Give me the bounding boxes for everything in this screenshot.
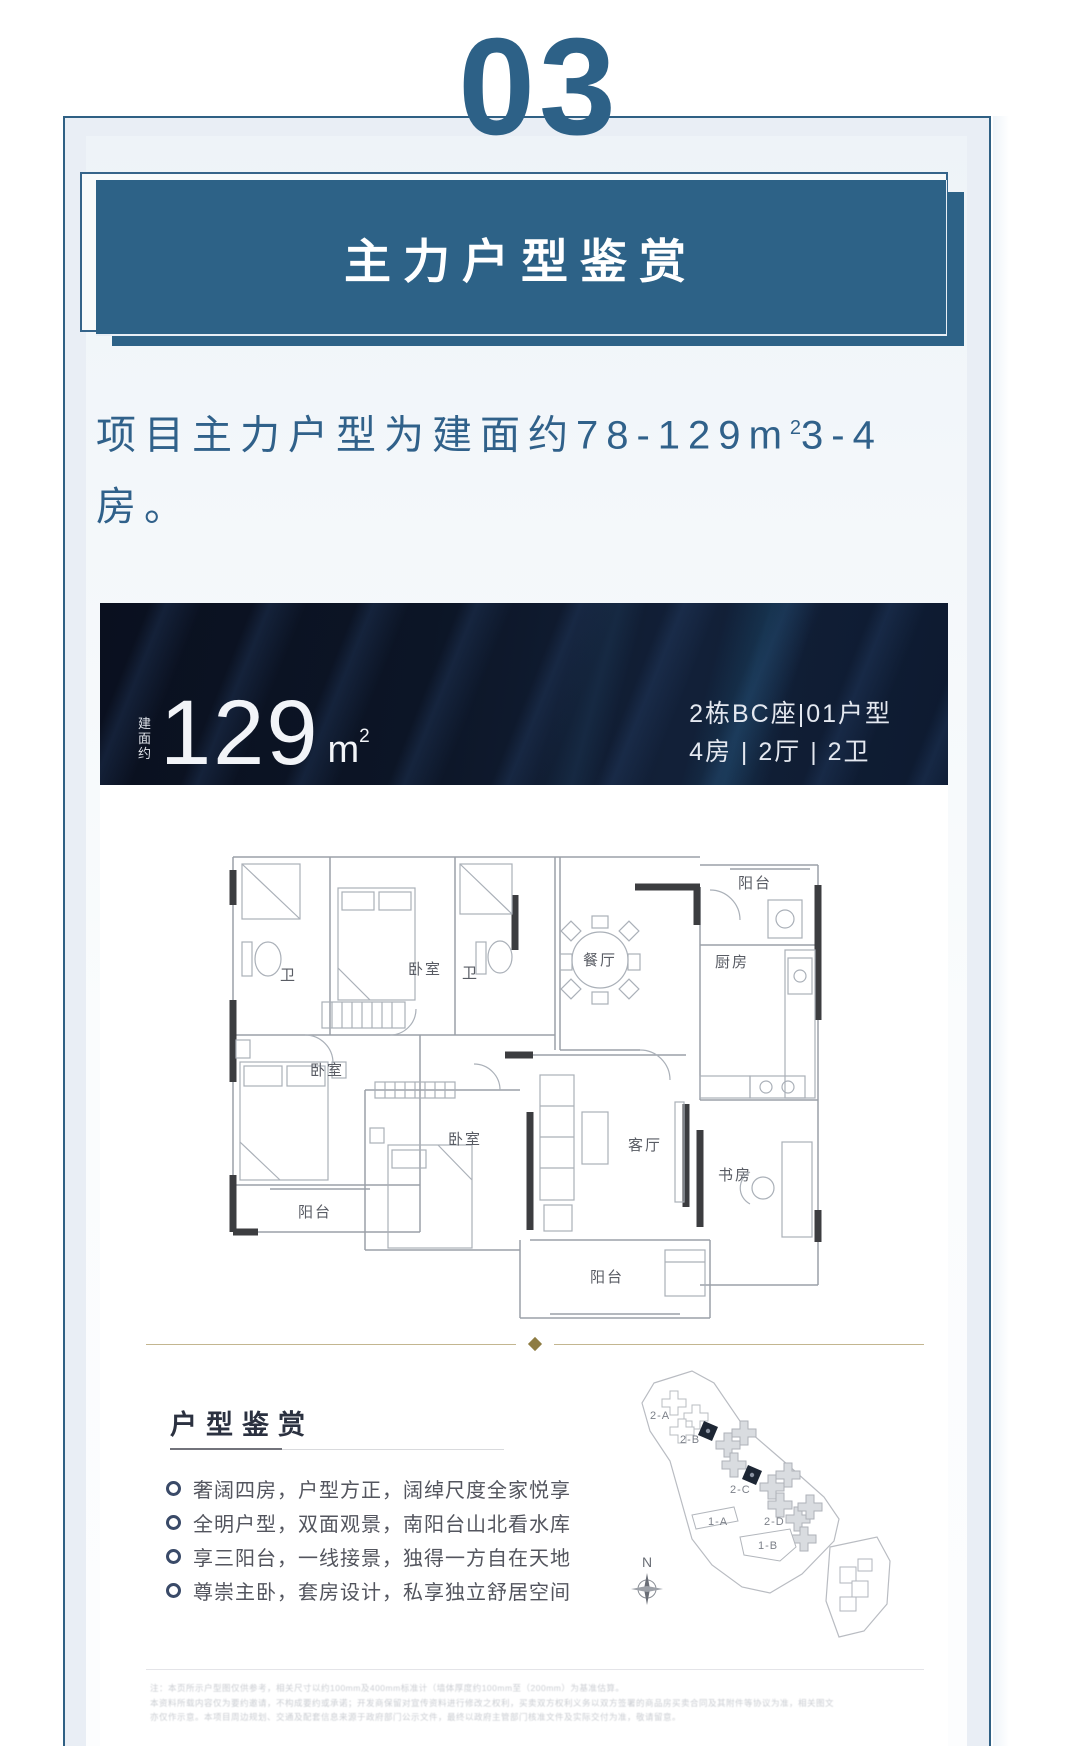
compass: N xyxy=(631,1554,663,1605)
highlights-underline-light xyxy=(282,1449,504,1450)
room-label-bath1: 卫 xyxy=(280,967,297,984)
bullet-dot-icon xyxy=(166,1481,181,1496)
site-label-2b: 2-B xyxy=(680,1434,700,1446)
site-label-2d: 2-D xyxy=(764,1516,785,1528)
divider-line-left xyxy=(146,1344,516,1345)
room-label-balcony-top: 阳台 xyxy=(738,875,772,892)
site-label-2c: 2-C xyxy=(730,1484,751,1496)
site-label-1a: 1-A xyxy=(708,1516,728,1528)
area-approx-label: 建面约 xyxy=(138,716,154,761)
list-item: 全明户型，双面观景，南阳台山北看水库 xyxy=(166,1505,571,1539)
site-plan: 2-A 2-B 2-C 2-D 1-A 1-B N xyxy=(592,1369,942,1669)
highlights-heading: 户型鉴赏 xyxy=(170,1403,314,1442)
gold-divider xyxy=(146,1339,924,1349)
list-item: 享三阳台，一线接景，独得一方自在天地 xyxy=(166,1539,571,1573)
plan-furniture xyxy=(236,864,815,1296)
room-label-balcony-left: 阳台 xyxy=(298,1204,332,1221)
plan-walls-black xyxy=(233,870,818,1242)
area-unit-sup: 2 xyxy=(359,726,370,747)
disclaimer-line: 注：本页所示户型图仅供参考，相关尺寸以约100mm及400mm标准计（墙体厚度约… xyxy=(150,1681,922,1696)
highlight-text: 尊崇主卧，套房设计，私享独立舒居空间 xyxy=(193,1576,571,1605)
intro-line1: 项目主力户型为建面约78-129 xyxy=(96,413,749,457)
title-banner: 主力户型鉴赏 xyxy=(96,180,947,336)
highlights-list: 奢阔四房，户型方正，阔绰尺度全家悦享 全明户型，双面观景，南阳台山北看水库 享三… xyxy=(166,1471,571,1607)
room-label-bedroom-mid: 卧室 xyxy=(448,1131,482,1148)
intro-unit-sup: 2 xyxy=(790,417,801,439)
bullet-dot-icon xyxy=(166,1549,181,1564)
unit-promo-card: 建面约 129 m2 2栋BC座|01户型 4房 | 2厅 | 2卫 xyxy=(100,603,948,1746)
intro-line1-post: 3-4 xyxy=(801,413,883,457)
bullet-dot-icon xyxy=(166,1583,181,1598)
disclaimer-text: 注：本页所示户型图仅供参考，相关尺寸以约100mm及400mm标准计（墙体厚度约… xyxy=(150,1681,922,1725)
intro-line2: 房。 xyxy=(96,485,192,529)
list-item: 尊崇主卧，套房设计，私享独立舒居空间 xyxy=(166,1573,571,1607)
room-label-dining: 餐厅 xyxy=(583,952,617,969)
unit-area-group: 建面约 129 m2 xyxy=(138,695,370,771)
frame-right-glow xyxy=(993,116,1009,1746)
page-title: 主力户型鉴赏 xyxy=(344,223,698,292)
unit-area-banner: 建面约 129 m2 2栋BC座|01户型 4房 | 2厅 | 2卫 xyxy=(100,603,948,785)
room-label-study: 书房 xyxy=(718,1167,752,1184)
site-label-2a: 2-A xyxy=(650,1410,670,1422)
intro-paragraph: 项目主力户型为建面约78-129m23-4 房。 xyxy=(96,392,956,543)
plan-doors xyxy=(305,890,740,1090)
disclaimer-line: 亦仅作示意。本项目周边规划、交通及配套信息来源于政府部门公示文件，最终以政府主管… xyxy=(150,1710,922,1725)
highlight-text: 全明户型，双面观景，南阳台山北看水库 xyxy=(193,1508,571,1537)
promo-article-page: 03 主力户型鉴赏 项目主力户型为建面约78-129m23-4 房。 建面约 1… xyxy=(0,0,1078,1746)
area-value: 129 xyxy=(160,695,320,771)
bullet-dot-icon xyxy=(166,1515,181,1530)
room-label-bedroom-left: 卧室 xyxy=(310,1062,344,1079)
plan-walls-thin xyxy=(233,857,818,1318)
layout-info: 4房 | 2厅 | 2卫 xyxy=(689,733,892,771)
intro-unit: m xyxy=(749,413,790,457)
room-label-balcony-bottom: 阳台 xyxy=(590,1269,624,1286)
room-label-living: 客厅 xyxy=(628,1137,662,1154)
divider-line-right xyxy=(554,1344,924,1345)
highlight-text: 享三阳台，一线接景，独得一方自在天地 xyxy=(193,1542,571,1571)
room-label-bedroom-top: 卧室 xyxy=(408,961,442,978)
highlights-underline-dark xyxy=(170,1448,282,1450)
floor-plan: 卫 卧室 卫 餐厅 阳台 厨房 卧室 卧室 客厅 书房 阳台 阳台 xyxy=(210,850,840,1320)
room-label-kitchen: 厨房 xyxy=(715,954,749,971)
room-label-bath2: 卫 xyxy=(462,965,479,982)
area-unit: m2 xyxy=(328,718,370,769)
unit-info-group: 2栋BC座|01户型 4房 | 2厅 | 2卫 xyxy=(689,695,892,771)
disclaimer-divider xyxy=(146,1669,924,1670)
block-info: 2栋BC座|01户型 xyxy=(689,695,892,733)
site-label-1b: 1-B xyxy=(758,1540,778,1552)
divider-diamond-icon xyxy=(528,1337,542,1351)
highlight-text: 奢阔四房，户型方正，阔绰尺度全家悦享 xyxy=(193,1474,571,1503)
disclaimer-line: 本资料所载内容仅为要约邀请，不构成要约或承诺；开发商保留对宣传资料进行修改之权利… xyxy=(150,1696,922,1711)
compass-n-label: N xyxy=(642,1554,653,1570)
list-item: 奢阔四房，户型方正，阔绰尺度全家悦享 xyxy=(166,1471,571,1505)
